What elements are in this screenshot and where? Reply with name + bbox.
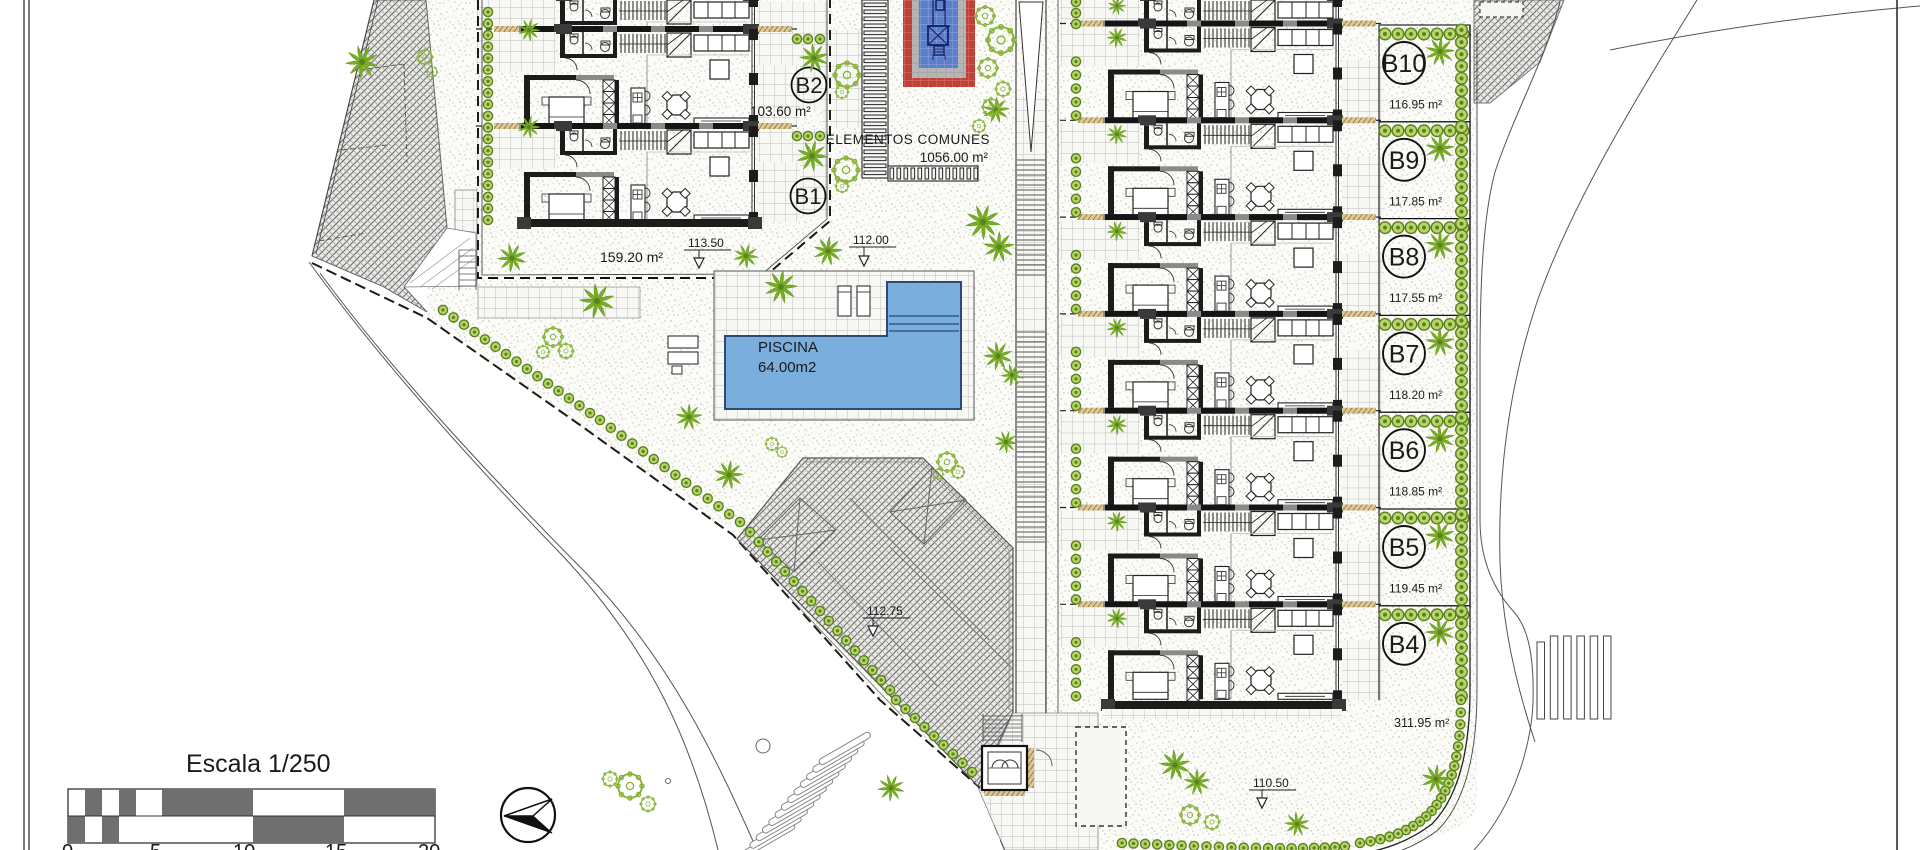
svg-text:64.00m2: 64.00m2 (758, 359, 816, 376)
svg-text:B6: B6 (1389, 437, 1420, 465)
svg-text:110.50: 110.50 (1253, 776, 1289, 790)
svg-text:Escala 1/250: Escala 1/250 (186, 750, 331, 778)
svg-text:112.75: 112.75 (867, 604, 903, 618)
svg-text:117.55 m²: 117.55 m² (1389, 291, 1442, 305)
svg-text:B2: B2 (796, 73, 823, 98)
svg-text:116.95 m²: 116.95 m² (1389, 98, 1442, 112)
svg-text:118.85 m²: 118.85 m² (1389, 485, 1442, 499)
svg-text:113.50: 113.50 (688, 236, 724, 250)
svg-text:311.95 m²: 311.95 m² (1394, 716, 1449, 730)
svg-text:B4: B4 (1389, 631, 1420, 659)
svg-text:B5: B5 (1389, 534, 1420, 562)
svg-text:B7: B7 (1389, 340, 1420, 368)
svg-text:112.00: 112.00 (853, 233, 889, 247)
svg-text:ELEMENTOS COMUNES: ELEMENTOS COMUNES (826, 132, 990, 147)
svg-text:103.60 m²: 103.60 m² (750, 104, 811, 119)
svg-text:5: 5 (150, 841, 161, 850)
svg-text:118.20 m²: 118.20 m² (1389, 388, 1442, 402)
svg-text:B10: B10 (1382, 50, 1426, 78)
svg-text:0: 0 (62, 841, 73, 850)
svg-text:117.85 m²: 117.85 m² (1389, 194, 1442, 208)
svg-text:159.20 m²: 159.20 m² (600, 249, 663, 265)
svg-text:10: 10 (233, 841, 255, 850)
svg-text:B8: B8 (1389, 244, 1420, 272)
svg-text:119.45 m²: 119.45 m² (1389, 582, 1442, 596)
svg-text:20: 20 (418, 841, 440, 850)
svg-text:PISCINA: PISCINA (758, 339, 818, 356)
svg-text:B1: B1 (795, 184, 822, 209)
svg-text:1056.00 m²: 1056.00 m² (920, 150, 989, 165)
svg-text:B9: B9 (1389, 147, 1420, 175)
svg-text:15: 15 (325, 841, 347, 850)
